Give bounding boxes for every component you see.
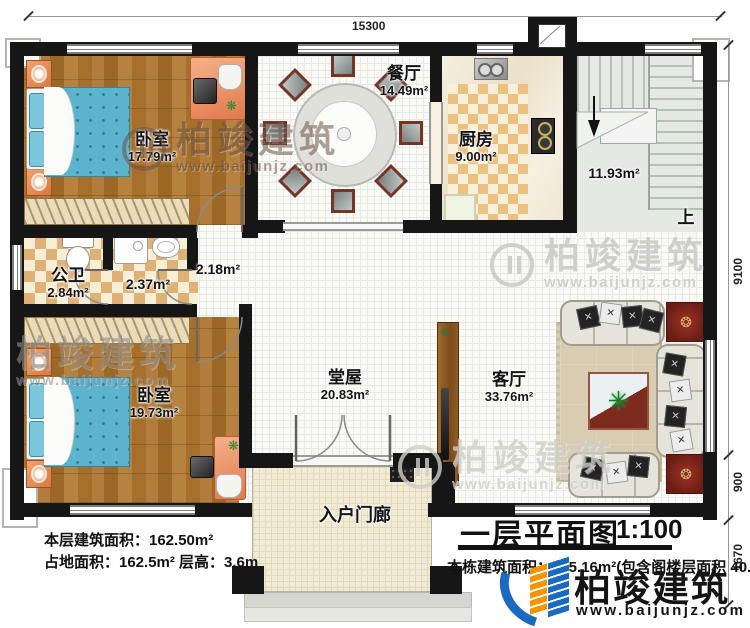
window-bathroom (12, 245, 22, 290)
sofa-pillow (664, 405, 687, 428)
sofa-pillow (669, 379, 693, 403)
floor-plan-canvas: 卧室 17.79m² 公卫 2.84m² 2.37m² 2.18m² 卧室 19… (0, 0, 750, 628)
room-area: 11.93m² (586, 166, 642, 181)
threshold-main-door (293, 455, 393, 467)
wall-bedroom-top-south-b (242, 225, 258, 238)
coffee-table (588, 372, 649, 430)
room-name: 堂屋 (314, 368, 376, 387)
dimension-line-top (28, 16, 722, 17)
sofa-pillow (627, 455, 650, 478)
sofa-pillow (669, 428, 693, 452)
room-area: 2.18m² (192, 262, 244, 277)
wall-porch-stub-west (239, 453, 293, 468)
wall-bedroom-top-south-a (10, 225, 197, 238)
room-label-bedroom-bottom: 卧室 19.73m² (122, 386, 186, 420)
room-area: 14.49m² (378, 83, 430, 98)
wall-bedroom-bottom-east (239, 304, 252, 462)
bed-blanket (44, 87, 75, 175)
stat-site-area: 占地面积：162.5m² 层高：3.6m (44, 551, 258, 572)
room-area: 19.73m² (122, 405, 186, 420)
kitchen-sink (444, 194, 476, 222)
computer-monitor (190, 456, 214, 478)
dimension-height-main: 9100 (731, 258, 745, 285)
wall-bathroom-south-a (10, 304, 197, 317)
bedroom-top-closet (24, 198, 190, 225)
wall-hall-living (432, 462, 455, 517)
washing-machine (114, 236, 148, 264)
room-label-living: 客厅 33.76m² (478, 370, 540, 404)
sofa-pillow (599, 302, 623, 326)
room-area: 17.79m² (120, 149, 184, 164)
sofa-pillow (605, 461, 629, 485)
wall-bathroom-divider (103, 238, 113, 270)
room-name: 客厅 (478, 370, 540, 389)
chimney-flue (538, 24, 566, 48)
brand-logo-building-icon (530, 563, 547, 615)
dining-chair (331, 53, 355, 77)
wall-dining-hall-stub (258, 220, 285, 233)
dining-chair (331, 189, 355, 213)
opening-dining-hall (283, 222, 403, 231)
room-name: 厨房 (448, 130, 504, 149)
room-label-laundry: 2.37m² (122, 277, 174, 292)
title-underline (458, 545, 672, 550)
porch-step-2 (244, 607, 472, 622)
room-area: 9.00m² (448, 149, 504, 164)
wall-kitchen-west-b (430, 184, 442, 233)
tv (441, 388, 449, 460)
stove (531, 118, 555, 154)
desk-chair (218, 64, 242, 90)
nightstand (26, 348, 52, 376)
window-living-east (705, 340, 715, 452)
brand-url: www.baijunjz.com (576, 602, 745, 619)
room-name: 入户门廊 (300, 506, 410, 525)
stairs-up-label: 上 (672, 208, 700, 227)
room-name: 卧室 (122, 386, 186, 405)
up-text: 上 (672, 208, 700, 227)
window-dining (298, 44, 399, 54)
room-area: 33.76m² (478, 389, 540, 404)
end-table (666, 302, 706, 342)
dining-table-center (337, 127, 351, 141)
plan-scale: 1:100 (616, 514, 683, 545)
plant-icon (440, 326, 449, 339)
room-label-bathroom: 公卫 2.84m² (40, 266, 96, 300)
sofa-pillow (580, 456, 605, 481)
wall-kitchen-west-a (430, 56, 442, 102)
wall-kitchen-stairs (563, 42, 577, 233)
nightstand (26, 60, 52, 88)
room-label-corridor: 2.18m² (192, 262, 244, 277)
bed-blanket (44, 377, 75, 465)
window-bedroom-bottom (70, 505, 195, 515)
computer-monitor (193, 78, 217, 104)
dining-chair (399, 121, 423, 145)
wash-basin (152, 236, 180, 258)
room-label-dining: 餐厅 14.49m² (378, 64, 430, 98)
bedroom-bottom-closet (24, 317, 190, 344)
range-hood (474, 58, 508, 80)
desk-chair (216, 474, 242, 498)
room-area: 2.37m² (122, 277, 174, 292)
room-area: 20.83m² (314, 387, 376, 402)
bed-pillow (29, 93, 45, 129)
bed-pillow (29, 383, 45, 419)
dining-chair (263, 121, 287, 145)
wall-bedroom-dining (245, 42, 258, 232)
room-name: 餐厅 (378, 64, 430, 83)
opening-kitchen-door (429, 102, 443, 184)
room-label-hall: 堂屋 20.83m² (314, 368, 376, 402)
room-name: 公卫 (40, 266, 96, 285)
window-bedroom-top (67, 44, 192, 54)
stat-floor-area: 本层建筑面积：162.50m² (44, 529, 213, 550)
end-table (666, 454, 706, 494)
brand-logo-building-icon (548, 555, 569, 618)
room-label-porch: 入户门廊 (300, 506, 410, 525)
room-label-bedroom-top: 卧室 17.79m² (120, 130, 184, 164)
window-stairwell (645, 44, 701, 54)
dimension-width: 15300 (352, 19, 385, 33)
room-label-kitchen: 厨房 9.00m² (448, 130, 504, 164)
plant-icon (226, 98, 237, 114)
room-name: 卧室 (120, 130, 184, 149)
porch-floor (252, 466, 432, 592)
bed-pillow (29, 421, 45, 457)
sofa-pillow (662, 352, 686, 376)
dimension-height-lower: 900 (731, 472, 745, 492)
stairwell-opening (600, 108, 657, 144)
bed-pillow (29, 131, 45, 167)
window-kitchen (477, 44, 513, 54)
brand-logo: 柏竣建筑 www.baijunjz.com (490, 552, 750, 628)
sofa-pillow (576, 305, 601, 330)
room-label-stairwell: 11.93m² (586, 166, 642, 181)
plant-icon (228, 438, 239, 454)
room-area: 2.84m² (40, 285, 96, 300)
